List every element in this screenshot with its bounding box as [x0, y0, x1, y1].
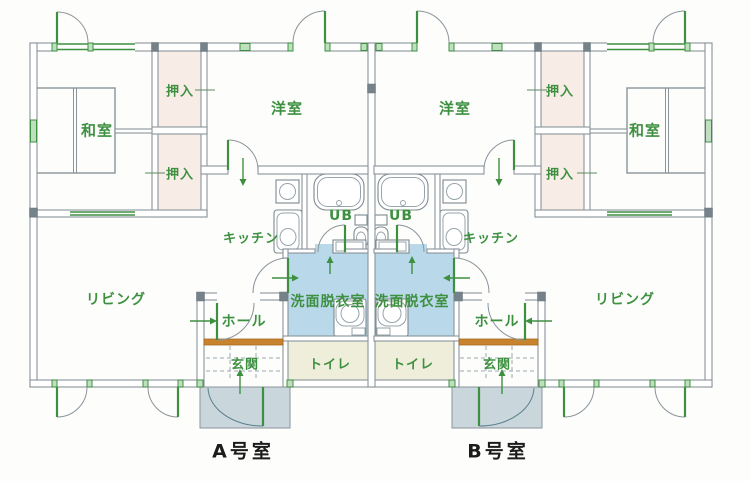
label-yoshitsu-a: 洋室 [271, 98, 303, 119]
entry-porch-b [452, 387, 542, 428]
door-living-a1 [57, 387, 87, 417]
label-toilet-b: トイレ [392, 354, 434, 373]
window-tick-b [492, 44, 502, 51]
label-washroom-b: 洗面脱衣室 [375, 291, 450, 311]
door-top-b2 [653, 11, 685, 43]
label-ub-a: UB [329, 208, 353, 224]
floor-plan-page: 和室 押入 押入 洋室 キッチン UB リビング 洗面脱衣室 ホール トイレ 玄… [0, 0, 750, 481]
arrow-yoshitsu-a [240, 158, 247, 186]
kamachi-a [204, 339, 283, 345]
label-oshiire-a-bottom: 押入 [166, 164, 194, 183]
label-washitsu-b: 和室 [629, 120, 661, 141]
door-living-b2 [655, 387, 685, 417]
window-right-wall [706, 120, 712, 142]
label-living-a: リビング [86, 289, 146, 309]
entry-porch-a [200, 387, 290, 428]
label-oshiire-b-bottom: 押入 [546, 164, 574, 183]
door-washroom-b [454, 258, 489, 293]
party-wall [368, 43, 375, 387]
bathtub-b [378, 174, 428, 210]
label-oshiire-a-top: 押入 [166, 81, 194, 100]
door-top-b1 [417, 11, 449, 43]
label-oshiire-b-top: 押入 [546, 81, 574, 100]
label-genkan-b: 玄関 [483, 354, 511, 373]
label-hall-a: ホール [222, 311, 267, 331]
floor-plan-drawing [0, 0, 750, 481]
label-washitsu-a: 和室 [81, 120, 113, 141]
label-ub-b: UB [389, 208, 413, 224]
label-washroom-a: 洗面脱衣室 [291, 291, 366, 311]
door-washroom-a [253, 258, 288, 293]
label-living-b: リビング [595, 289, 655, 309]
label-hall-b: ホール [475, 311, 520, 331]
label-yoshitsu-b: 洋室 [439, 98, 471, 119]
label-kitchen-b: キッチン [463, 228, 519, 247]
unit-label-b: B号室 [467, 437, 528, 464]
door-living-b1 [564, 387, 594, 417]
window-tick-a [240, 44, 250, 51]
bathtub-a [314, 174, 364, 210]
arrow-yoshitsu-b [496, 158, 503, 186]
label-kitchen-a: キッチン [223, 228, 279, 247]
label-toilet-a: トイレ [309, 354, 351, 373]
unit-label-a: A号室 [212, 437, 274, 464]
window-left-wall [31, 120, 37, 142]
door-top-a2 [293, 11, 325, 43]
door-top-a1 [57, 12, 88, 43]
label-genkan-a: 玄関 [231, 354, 259, 373]
door-living-a2 [148, 387, 178, 417]
kamachi-b [459, 339, 538, 345]
